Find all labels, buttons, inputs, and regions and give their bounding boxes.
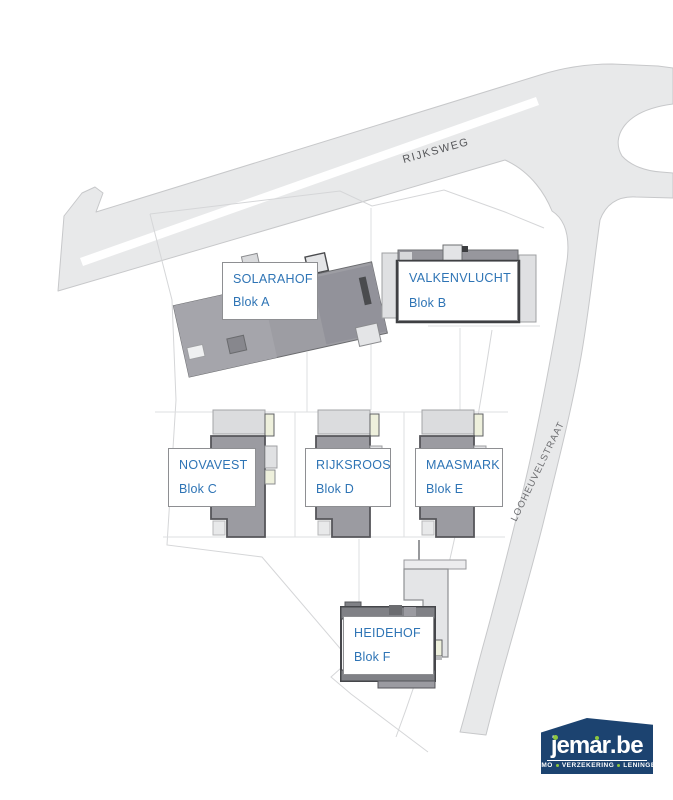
block-label-novavest[interactable]: NOVAVEST Blok C [168, 448, 256, 507]
tagline-verzekering: VERZEKERING [562, 763, 614, 770]
road-median-stripe [80, 97, 539, 266]
block-sub: Blok F [354, 650, 423, 664]
jemar-logo-badge: jemar.be IMMO VERZEKERING LENINGEN [541, 718, 653, 774]
block-name: NOVAVEST [179, 458, 245, 472]
jemar-brand-name: jemar [551, 732, 610, 759]
block-label-rijksroos[interactable]: RIJKSROOS Blok D [305, 448, 391, 507]
dot-separator [556, 764, 559, 767]
green-a-accent [595, 736, 599, 740]
block-sub: Blok E [426, 482, 492, 496]
block-sub: Blok C [179, 482, 245, 496]
green-j-dot [553, 735, 558, 740]
block-label-heidehof[interactable]: HEIDEHOF Blok F [343, 616, 434, 675]
block-name: VALKENVLUCHT [409, 271, 507, 285]
block-label-valkenvlucht[interactable]: VALKENVLUCHT Blok B [398, 261, 518, 321]
jemar-brand: jemar.be [551, 734, 643, 758]
dot-separator [617, 764, 620, 767]
block-sub: Blok A [233, 295, 307, 309]
site-plan-map [0, 0, 673, 800]
block-name: HEIDEHOF [354, 626, 423, 640]
block-name: MAASMARK [426, 458, 492, 472]
jemar-brand-suffix: .be [610, 732, 643, 759]
logo-tagline: IMMO VERZEKERING LENINGEN [533, 763, 661, 770]
block-name: RIJKSROOS [316, 458, 380, 472]
logo-divider [547, 760, 648, 761]
block-sub: Blok B [409, 296, 507, 310]
block-label-maasmark[interactable]: MAASMARK Blok E [415, 448, 503, 507]
jemar-logo[interactable]: jemar.be IMMO VERZEKERING LENINGEN [541, 718, 653, 774]
block-name: SOLARAHOF [233, 272, 307, 286]
site-plan: RIJKSWEG LOOHEUVELSTRAAT SOLARAHOF Blok … [0, 0, 673, 800]
block-label-solarahof[interactable]: SOLARAHOF Blok A [222, 262, 318, 320]
block-sub: Blok D [316, 482, 380, 496]
